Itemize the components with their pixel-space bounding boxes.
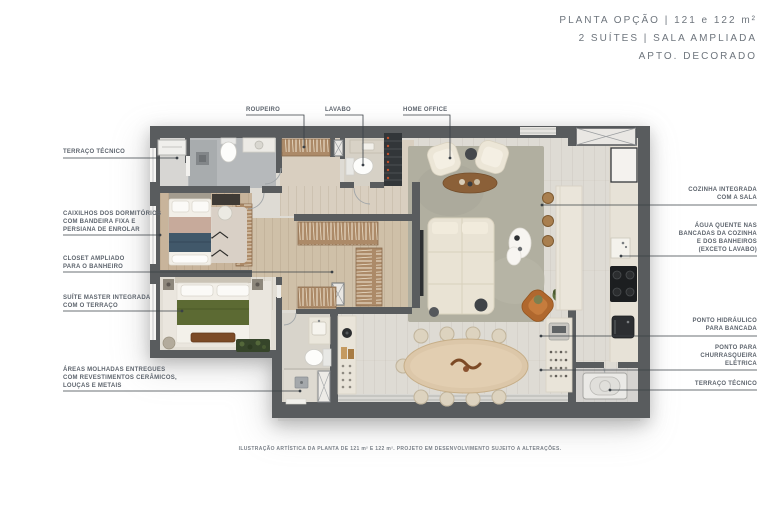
shower-box-master <box>318 371 330 402</box>
footer-caption: ILUSTRAÇÃO ARTÍSTICA DA PLANTA DE 121 m²… <box>140 446 660 452</box>
shaft-top-right <box>576 128 636 145</box>
annotation-home-office: HOME OFFICE <box>403 106 447 114</box>
side-table <box>465 148 477 160</box>
annotation-areas-molhadas: ÁREAS MOLHADAS ENTREGUES COM REVESTIMENT… <box>63 366 177 390</box>
pouf <box>163 337 175 349</box>
annotation-suite-master: SUÍTE MASTER INTEGRADA COM O TERRAÇO <box>63 294 151 310</box>
pouf <box>429 307 439 317</box>
bed-suite-master <box>175 277 251 343</box>
annotation-closet: CLOSET AMPLIADO PARA O BANHEIRO <box>63 255 125 271</box>
tv-panel <box>420 230 424 296</box>
floor-plan-page: PLANTA OPÇÃO | 121 e 122 m² 2 SUÍTES | S… <box>0 0 767 506</box>
title-line-3: APTO. DECORADO <box>559 48 757 66</box>
dining-chair <box>492 390 506 404</box>
annotation-roupeiro: ROUPEIRO <box>246 106 280 114</box>
dining-chair <box>440 327 454 341</box>
annotation-lavabo: LAVABO <box>325 106 351 114</box>
floor-plan-illustration <box>0 0 767 506</box>
dining-chair <box>414 329 428 343</box>
annotation-terraco-tecnico-2: TERRAÇO TÉCNICO <box>695 380 757 388</box>
stool <box>543 216 554 227</box>
title-line-2: 2 SUÍTES | SALA AMPLIADA <box>559 30 757 48</box>
cooktop <box>610 266 637 302</box>
stool <box>543 193 554 204</box>
washer-unit <box>583 373 627 399</box>
bench <box>191 333 235 342</box>
bed-suite-2 <box>169 193 211 265</box>
roupeiro-wardrobe <box>282 139 330 156</box>
dining-chair <box>414 390 428 404</box>
bancada-churrasqueira <box>546 318 572 392</box>
desk-chair <box>218 206 232 220</box>
coffee-bar-counter <box>338 316 356 394</box>
pouf <box>475 299 488 312</box>
adega-cabinet <box>384 133 402 186</box>
page-title: PLANTA OPÇÃO | 121 e 122 m² 2 SUÍTES | S… <box>559 12 757 66</box>
dining-chair <box>492 329 506 343</box>
stool <box>543 236 554 247</box>
annotation-terraco-tecnico-1: TERRAÇO TÉCNICO <box>63 148 125 156</box>
toilet <box>305 350 323 366</box>
fridge <box>611 148 637 182</box>
annotation-churrasqueira: PONTO PARA CHURRASQUEIRA ELÉTRICA <box>700 344 757 368</box>
annotation-caixilhos: CAIXILHOS DOS DORMITÓRIOS COM BANDEIRA F… <box>63 210 161 234</box>
small-oven <box>612 316 634 338</box>
annotation-cozinha-integrada: COZINHA INTEGRADA COM A SALA <box>688 186 757 202</box>
desk <box>212 194 240 205</box>
annotation-agua-quente: ÁGUA QUENTE NAS BANCADAS DA COZINHA E DO… <box>679 222 757 254</box>
toilet <box>221 142 237 162</box>
dining-chair <box>466 392 480 406</box>
suite-2-furniture <box>169 193 264 266</box>
shaft-lavabo <box>334 140 343 156</box>
dining-chair <box>440 392 454 406</box>
title-line-1: PLANTA OPÇÃO | 121 e 122 m² <box>559 12 757 30</box>
suite-master-furniture <box>163 277 281 352</box>
window-top <box>520 127 556 135</box>
annotation-ponto-hidraulico: PONTO HIDRÁULICO PARA BANCADA <box>692 317 757 333</box>
